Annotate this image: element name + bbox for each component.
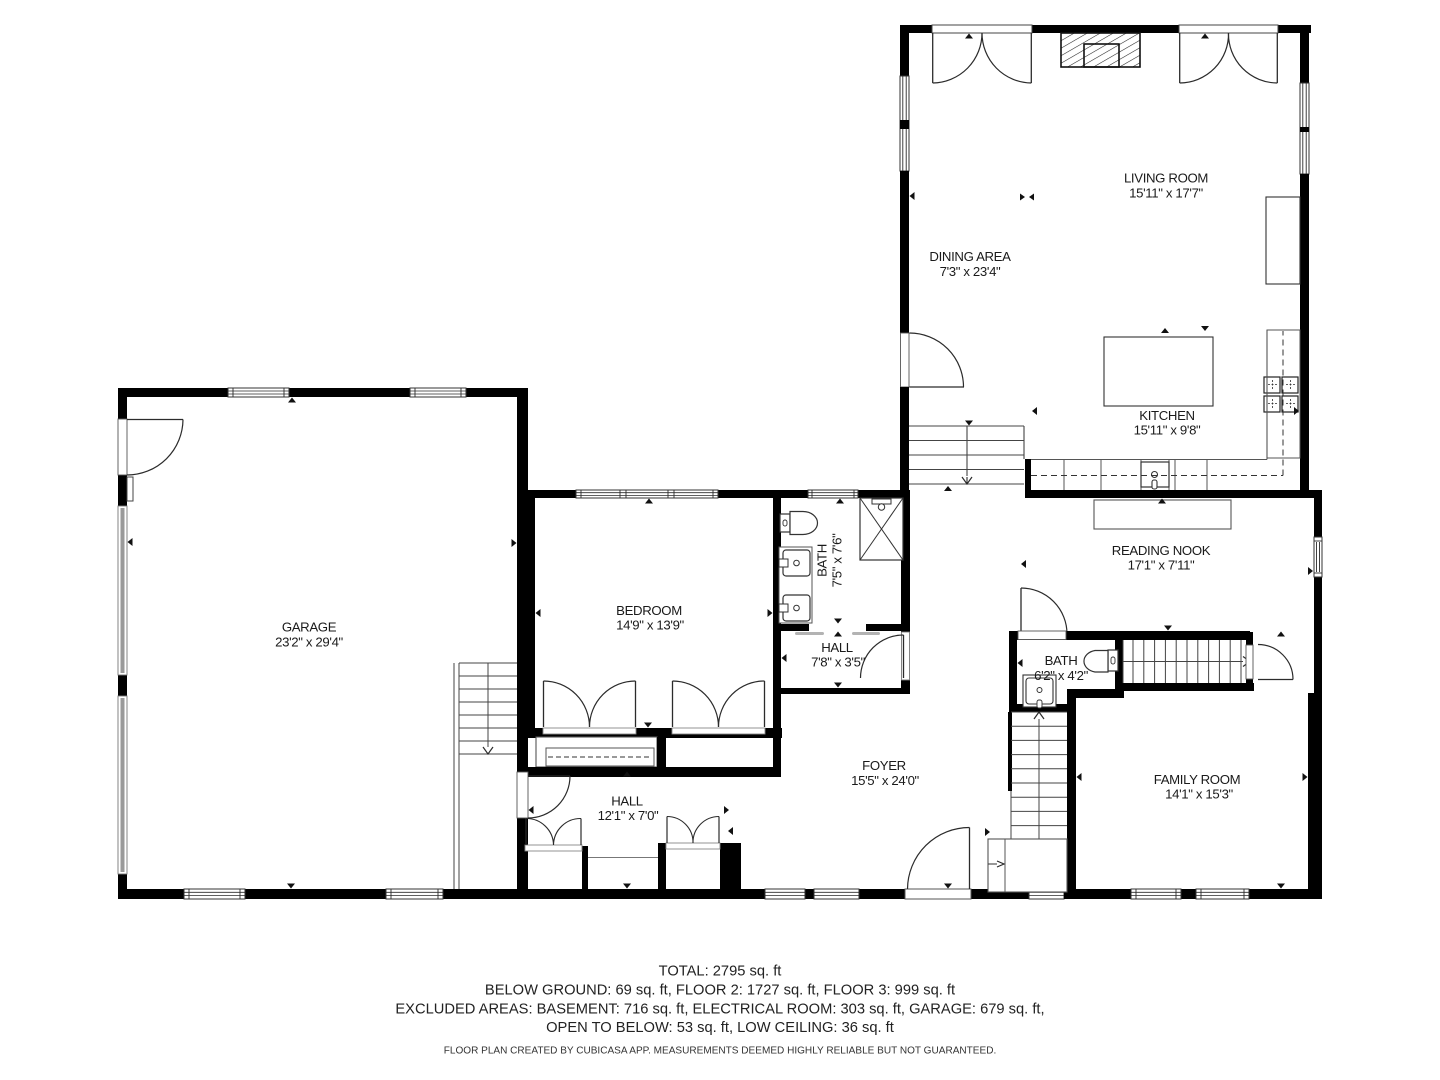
svg-text:FLOOR PLAN CREATED BY CUBICASA: FLOOR PLAN CREATED BY CUBICASA APP. MEAS… <box>444 1046 997 1057</box>
svg-text:KITCHEN: KITCHEN <box>1139 408 1194 423</box>
svg-text:15'5" x 24'0": 15'5" x 24'0" <box>851 773 919 788</box>
svg-text:BELOW GROUND: 69 sq. ft, FLOOR: BELOW GROUND: 69 sq. ft, FLOOR 2: 1727 s… <box>485 983 955 999</box>
svg-text:HALL: HALL <box>821 640 853 655</box>
svg-text:15'11" x 9'8": 15'11" x 9'8" <box>1134 423 1201 438</box>
svg-text:7'8" x 3'5": 7'8" x 3'5" <box>811 655 865 670</box>
svg-text:7'5" x 7'6": 7'5" x 7'6" <box>830 533 845 587</box>
svg-text:17'1" x 7'11": 17'1" x 7'11" <box>1128 558 1195 573</box>
svg-text:OPEN TO BELOW: 53 sq. ft, LOW: OPEN TO BELOW: 53 sq. ft, LOW CEILING: 3… <box>546 1020 894 1036</box>
svg-text:GARAGE: GARAGE <box>282 620 337 635</box>
svg-text:TOTAL: 2795 sq. ft: TOTAL: 2795 sq. ft <box>659 964 782 980</box>
svg-text:HALL: HALL <box>611 794 643 809</box>
svg-text:14'9" x 13'9": 14'9" x 13'9" <box>616 618 684 633</box>
svg-text:READING NOOK: READING NOOK <box>1112 543 1211 558</box>
svg-text:FOYER: FOYER <box>862 758 906 773</box>
svg-text:12'1" x 7'0": 12'1" x 7'0" <box>598 808 659 823</box>
svg-text:FAMILY ROOM: FAMILY ROOM <box>1154 772 1241 787</box>
svg-text:7'3" x 23'4": 7'3" x 23'4" <box>940 264 1001 279</box>
svg-text:BATH: BATH <box>1045 653 1078 668</box>
svg-text:DINING AREA: DINING AREA <box>929 249 1011 264</box>
svg-text:LIVING ROOM: LIVING ROOM <box>1124 171 1208 186</box>
svg-text:23'2" x 29'4": 23'2" x 29'4" <box>275 635 343 650</box>
svg-text:15'11" x 17'7": 15'11" x 17'7" <box>1129 185 1203 200</box>
svg-text:EXCLUDED AREAS: BASEMENT: 716: EXCLUDED AREAS: BASEMENT: 716 sq. ft, EL… <box>395 1002 1044 1018</box>
svg-text:BEDROOM: BEDROOM <box>616 603 682 618</box>
svg-text:6'2" x 4'2": 6'2" x 4'2" <box>1034 668 1088 683</box>
svg-text:BATH: BATH <box>815 544 830 577</box>
svg-text:14'1" x 15'3": 14'1" x 15'3" <box>1165 787 1233 802</box>
